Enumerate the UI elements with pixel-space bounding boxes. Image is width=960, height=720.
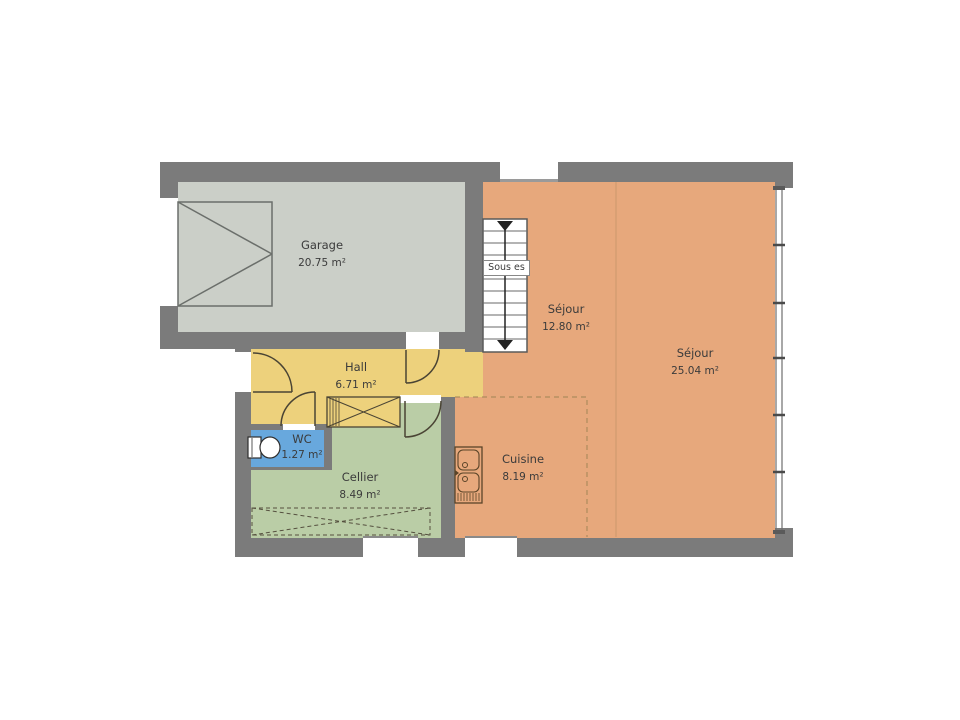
- wall-stub-bottom-right: [775, 528, 793, 557]
- floor-plan: Garage 20.75 m² Séjour 12.80 m² Séjour 2…: [0, 0, 960, 720]
- window-opening-top: [500, 162, 558, 182]
- room-wc: [251, 427, 324, 467]
- room-garage: [178, 182, 465, 332]
- room-hall: [251, 348, 483, 397]
- garage-hall-door-opening: [406, 332, 439, 349]
- cellier-door-opening: [400, 395, 441, 403]
- room-hall-lower: [251, 397, 327, 427]
- wc-door-opening: [283, 424, 315, 430]
- wall-wc-top-left: [249, 424, 283, 430]
- wall-stub-top-right: [775, 163, 793, 188]
- room-cuisine: [455, 397, 465, 538]
- label-stairs: Sous es: [483, 260, 530, 276]
- wall-garage-sejour: [465, 162, 483, 352]
- room-sejour: [465, 178, 775, 538]
- wall-wc-right: [324, 424, 332, 470]
- wall-left-upper: [160, 162, 178, 198]
- wall-cellier-cuisine: [441, 397, 455, 538]
- entrance-door-opening: [235, 352, 251, 392]
- window-opening-cuisine: [465, 538, 517, 557]
- window-opening-cellier: [363, 538, 418, 557]
- wall-wc-bottom: [249, 467, 331, 470]
